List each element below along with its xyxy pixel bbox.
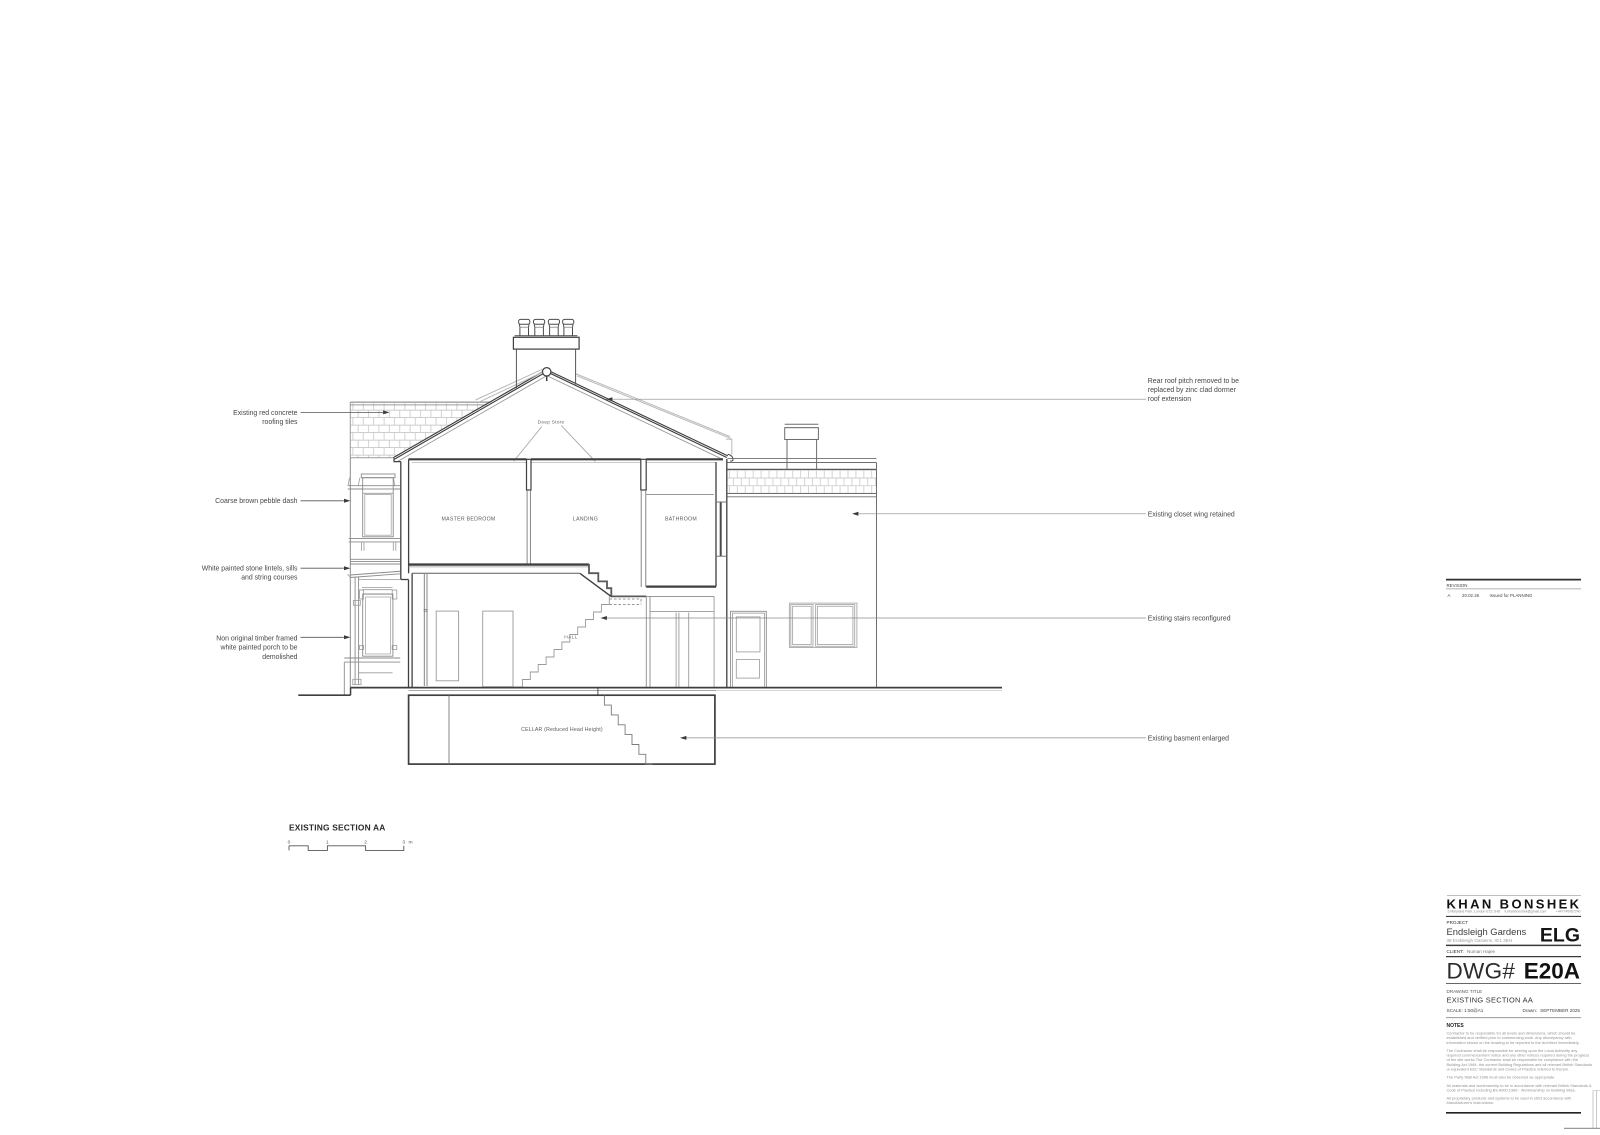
svg-text:ELG: ELG	[1540, 925, 1580, 947]
svg-text:REVISION: REVISION	[1447, 583, 1468, 588]
svg-text:20.02.26: 20.02.26	[1462, 593, 1480, 598]
svg-text:white painted porch to be: white painted porch to be	[220, 645, 298, 652]
svg-text:Endsleigh Gardens: Endsleigh Gardens	[1447, 926, 1527, 937]
svg-text:information shown on the drawi: information shown on the drawing to be r…	[1447, 1040, 1580, 1045]
svg-text:roof extension: roof extension	[1148, 396, 1191, 403]
svg-text:SCALE: 1:50@A1: SCALE: 1:50@A1	[1447, 1008, 1484, 1013]
svg-text:A: A	[1448, 593, 1451, 598]
svg-text:Existing basment enlarged: Existing basment enlarged	[1148, 735, 1229, 742]
svg-text:2: 2	[364, 840, 367, 846]
svg-text:HALL: HALL	[564, 634, 577, 640]
svg-text:Deep Store: Deep Store	[538, 419, 565, 425]
svg-text:replaced by zinc clad dormer: replaced by zinc clad dormer	[1148, 387, 1237, 394]
svg-text:The Party Wall Act 1996 must a: The Party Wall Act 1996 must also be obs…	[1447, 1075, 1556, 1080]
svg-text:CLIENT:: CLIENT:	[1447, 949, 1464, 954]
svg-text:EXISTING SECTION AA: EXISTING SECTION AA	[289, 822, 386, 832]
svg-text:and string courses: and string courses	[241, 575, 298, 582]
svg-text:MASTER BEDROOM: MASTER BEDROOM	[441, 517, 495, 523]
svg-text:or equivalent EEC Standards an: or equivalent EEC Standards and Codes of…	[1447, 1066, 1570, 1071]
svg-text:roofing tiles: roofing tiles	[262, 419, 298, 426]
svg-text:Coarse brown pebble dash: Coarse brown pebble dash	[215, 498, 298, 505]
svg-text:EXISTING SECTION AA: EXISTING SECTION AA	[1447, 996, 1534, 1005]
svg-text:k.khanbonshek@gmail.com: k.khanbonshek@gmail.com	[1505, 909, 1547, 913]
svg-text:5 Maryland Park, London E15 1H: 5 Maryland Park, London E15 1HB	[1448, 909, 1501, 913]
svg-text:Existing red concrete: Existing red concrete	[233, 410, 298, 417]
svg-text:White painted stone lintels, s: White painted stone lintels, sills	[202, 566, 298, 573]
svg-text:Drawn:: Drawn:	[1523, 1008, 1538, 1013]
svg-text:m: m	[409, 841, 413, 846]
svg-text:DRAWING TITLE: DRAWING TITLE	[1447, 989, 1483, 994]
svg-text:LANDING: LANDING	[573, 517, 598, 523]
svg-text:Code of Practice including BS: Code of Practice including BS 8000:1989 …	[1447, 1087, 1576, 1092]
svg-text:demolished: demolished	[262, 654, 297, 661]
svg-text:Issued for PLANNING: Issued for PLANNING	[1490, 593, 1534, 598]
svg-text:DWG#: DWG#	[1447, 958, 1516, 983]
svg-text:SEPTEMBER 2025: SEPTEMBER 2025	[1540, 1008, 1580, 1013]
svg-text:Numan Hajee: Numan Hajee	[1467, 949, 1496, 954]
svg-text:1: 1	[326, 840, 329, 846]
svg-text:CELLAR (Reduced Head Height): CELLAR (Reduced Head Height)	[521, 727, 603, 733]
svg-text:+447740067240: +447740067240	[1556, 909, 1581, 913]
svg-text:Non original timber framed: Non original timber framed	[216, 636, 297, 643]
svg-text:Rear roof pitch removed to be: Rear roof pitch removed to be	[1148, 378, 1239, 385]
svg-text:E20A: E20A	[1524, 958, 1580, 983]
svg-text:PROJECT: PROJECT	[1447, 920, 1469, 925]
svg-text:0: 0	[288, 840, 291, 846]
svg-text:NOTES: NOTES	[1447, 1023, 1465, 1029]
svg-text:Manufacturer's instructions.: Manufacturer's instructions.	[1447, 1100, 1494, 1105]
svg-text:Existing closet wing retained: Existing closet wing retained	[1148, 511, 1235, 518]
svg-text:Existing stairs reconfigured: Existing stairs reconfigured	[1148, 616, 1231, 623]
svg-text:BATHROOM: BATHROOM	[665, 517, 697, 523]
svg-text:3: 3	[402, 840, 405, 846]
svg-text:38 Endsleigh Gardens, IG1 3EH: 38 Endsleigh Gardens, IG1 3EH	[1447, 938, 1513, 943]
